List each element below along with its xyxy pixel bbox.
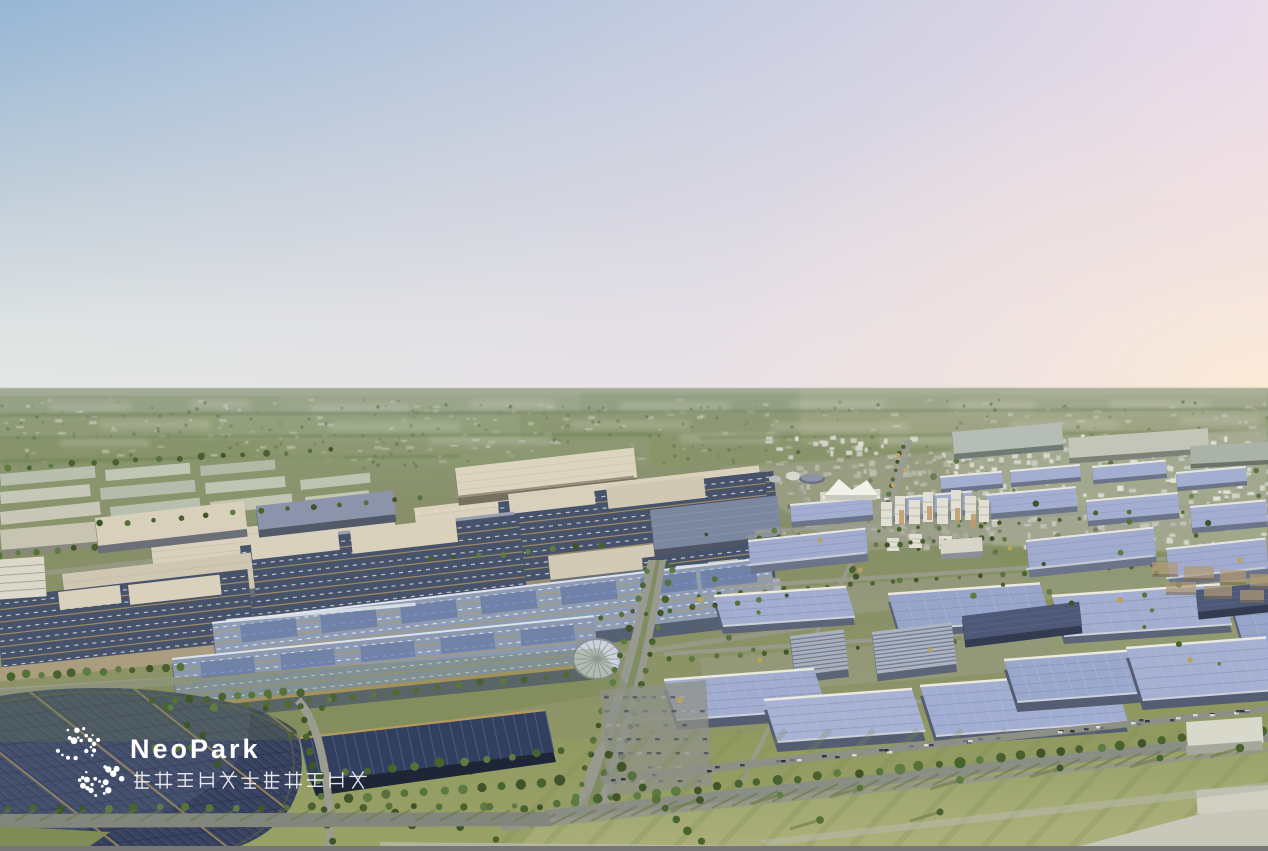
svg-text:NeoPark: NeoPark (130, 734, 261, 764)
